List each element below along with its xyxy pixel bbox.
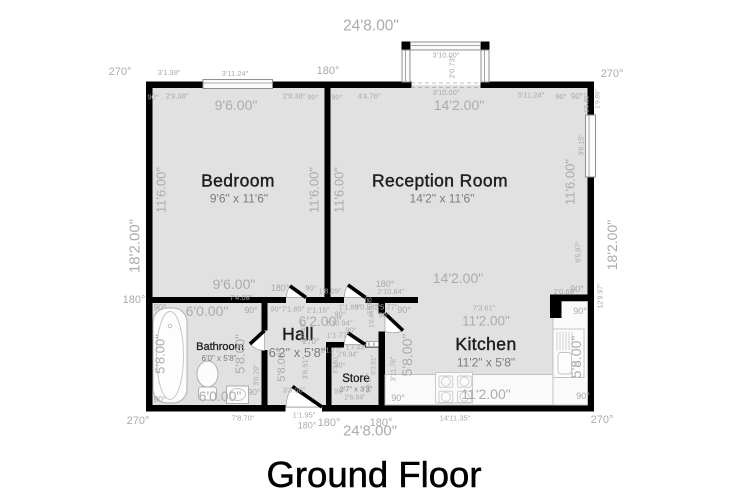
svg-text:Bedroom: Bedroom <box>201 171 275 191</box>
svg-text:5'11.24": 5'11.24" <box>518 91 545 100</box>
svg-text:180°: 180° <box>123 294 146 306</box>
svg-text:Ground Floor: Ground Floor <box>266 454 481 495</box>
svg-text:90°: 90° <box>555 92 566 101</box>
svg-text:14'2" x 11'6": 14'2" x 11'6" <box>410 191 475 205</box>
svg-text:14'2.00": 14'2.00" <box>434 97 484 113</box>
svg-text:6'0.00": 6'0.00" <box>186 303 229 319</box>
svg-text:90°: 90° <box>331 93 342 102</box>
svg-text:90°: 90° <box>248 387 261 397</box>
svg-text:6'5.97": 6'5.97" <box>575 241 582 263</box>
svg-text:1'1.95": 1'1.95" <box>293 411 316 420</box>
svg-text:90°: 90° <box>270 305 281 314</box>
svg-text:7'8.70": 7'8.70" <box>232 414 255 423</box>
svg-text:11'6.00": 11'6.00" <box>307 167 322 213</box>
svg-text:270°: 270° <box>601 68 624 80</box>
svg-text:5'8.00": 5'8.00" <box>233 334 248 374</box>
svg-text:90°: 90° <box>305 284 316 293</box>
svg-text:12'9.97": 12'9.97" <box>597 283 604 309</box>
svg-text:2'9.38": 2'9.38" <box>166 92 189 101</box>
svg-text:2'0.73": 2'0.73" <box>448 55 457 78</box>
svg-text:180°: 180° <box>318 417 341 429</box>
svg-text:1'1.77": 1'1.77" <box>327 331 350 340</box>
svg-text:90°: 90° <box>397 305 411 315</box>
svg-text:11'2.00": 11'2.00" <box>461 386 510 402</box>
svg-text:1'5.85": 1'5.85" <box>366 294 373 315</box>
svg-text:11'6.00": 11'6.00" <box>563 159 578 205</box>
svg-text:2'9.38": 2'9.38" <box>283 92 306 101</box>
svg-text:9'6.00": 9'6.00" <box>213 276 256 292</box>
svg-text:5'8.00": 5'8.00" <box>399 334 415 377</box>
svg-text:9'6.00": 9'6.00" <box>215 97 258 113</box>
svg-text:9'3.17": 9'3.17" <box>365 372 372 393</box>
svg-text:Reception Room: Reception Room <box>372 171 508 191</box>
svg-text:3'11.76": 3'11.76" <box>390 356 397 381</box>
svg-text:11'6.00": 11'6.00" <box>154 167 169 213</box>
svg-text:9'6" x 11'6": 9'6" x 11'6" <box>210 191 268 205</box>
svg-text:270°: 270° <box>591 414 614 426</box>
svg-text:2'0.68": 2'0.68" <box>554 287 577 296</box>
svg-text:90°: 90° <box>307 93 318 102</box>
svg-text:90°: 90° <box>154 394 167 404</box>
svg-text:3'10.00": 3'10.00" <box>432 88 459 97</box>
svg-text:3'6.15": 3'6.15" <box>578 134 585 156</box>
svg-text:6'3.51": 6'3.51" <box>370 354 377 375</box>
svg-text:3'6.51": 3'6.51" <box>301 356 310 379</box>
svg-text:1'7.43": 1'7.43" <box>345 344 367 351</box>
svg-text:24'8.00": 24'8.00" <box>343 422 397 439</box>
svg-text:18'2.00": 18'2.00" <box>126 219 143 273</box>
svg-text:90°: 90° <box>154 302 167 312</box>
svg-text:14'11.35": 14'11.35" <box>440 414 471 423</box>
svg-text:3'1.38": 3'1.38" <box>158 68 181 77</box>
svg-text:180°: 180° <box>298 421 317 431</box>
svg-text:3'11.24": 3'11.24" <box>222 69 249 78</box>
svg-text:3'3.06": 3'3.06" <box>283 386 306 395</box>
svg-text:90°: 90° <box>147 93 158 102</box>
svg-text:1'8.09": 1'8.09" <box>319 287 342 296</box>
svg-text:6'0.00": 6'0.00" <box>199 388 242 404</box>
svg-text:270°: 270° <box>303 337 320 346</box>
svg-text:180°: 180° <box>317 65 340 77</box>
svg-text:2'1.15": 2'1.15" <box>307 306 330 315</box>
svg-text:90°: 90° <box>334 310 345 319</box>
svg-text:14'2.00": 14'2.00" <box>433 270 483 286</box>
svg-text:3'0.29": 3'0.29" <box>253 364 260 386</box>
svg-text:5'8.00": 5'8.00" <box>276 348 288 382</box>
svg-text:7'3.61": 7'3.61" <box>473 304 496 313</box>
svg-text:5'8.00": 5'8.00" <box>568 336 584 379</box>
svg-text:3'3.51": 3'3.51" <box>332 353 339 374</box>
svg-text:1'1.77": 1'1.77" <box>320 348 342 355</box>
svg-text:6'0" x 5'8": 6'0" x 5'8" <box>202 354 237 363</box>
svg-text:11'2.00": 11'2.00" <box>462 314 510 329</box>
svg-text:2'6.94": 2'6.94" <box>344 394 366 401</box>
svg-text:7'1.85": 7'1.85" <box>282 305 305 314</box>
svg-text:1'9.89": 1'9.89" <box>594 88 601 109</box>
svg-text:180°: 180° <box>271 283 290 293</box>
svg-text:Kitchen: Kitchen <box>455 334 516 354</box>
svg-text:5'8.00": 5'8.00" <box>153 334 168 374</box>
svg-text:4'4.76": 4'4.76" <box>358 92 381 101</box>
svg-text:11'6.00": 11'6.00" <box>332 167 347 213</box>
svg-text:270°: 270° <box>127 415 150 427</box>
svg-text:18'2.00": 18'2.00" <box>604 220 620 270</box>
svg-text:90°: 90° <box>391 393 405 403</box>
svg-text:11'2" x 5'8": 11'2" x 5'8" <box>457 355 515 369</box>
svg-text:270°: 270° <box>109 66 132 78</box>
svg-text:2'10.84": 2'10.84" <box>377 287 404 296</box>
svg-text:24'8.00": 24'8.00" <box>343 17 399 34</box>
svg-text:90°: 90° <box>576 391 590 401</box>
svg-text:90°: 90° <box>378 311 389 320</box>
svg-text:90°: 90° <box>573 306 587 316</box>
svg-text:90°: 90° <box>571 92 583 101</box>
svg-text:90°: 90° <box>245 305 258 315</box>
svg-text:7'4.08": 7'4.08" <box>230 293 253 302</box>
svg-text:1'5.85": 1'5.85" <box>583 92 590 113</box>
